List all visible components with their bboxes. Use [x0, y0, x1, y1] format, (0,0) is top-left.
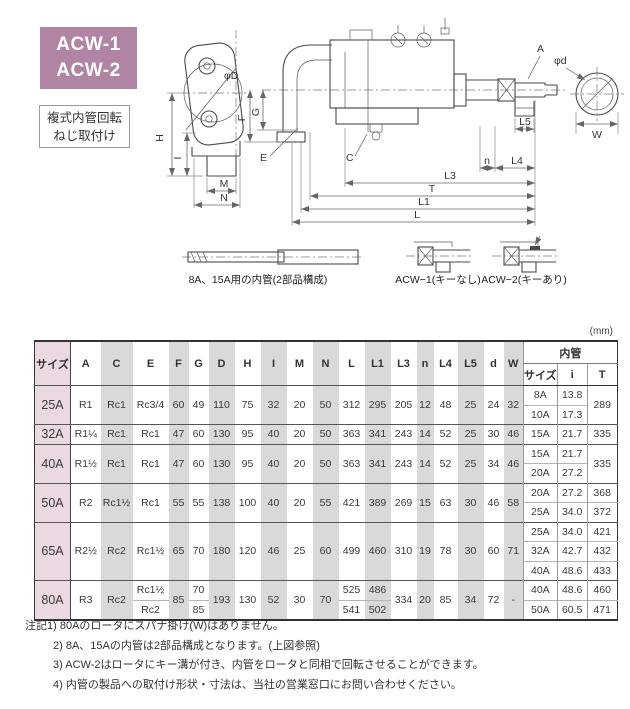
table-cell: 27.2: [557, 483, 587, 503]
table-cell: 34: [458, 581, 484, 621]
table-cell: 58: [504, 483, 524, 522]
acw1-figure: ACW−1(キーなし): [395, 242, 480, 286]
table-cell: 49: [189, 386, 209, 425]
table-header: サイズACEFGDHIMNLL1L3nL4L5dW内管サイズiT: [35, 341, 618, 386]
table-cell: 421: [339, 483, 365, 522]
table-cell: 389: [365, 483, 391, 522]
dim-label-phiD: φD: [224, 70, 239, 82]
column-header: M: [287, 341, 313, 386]
column-header: C: [101, 341, 133, 386]
column-header: d: [484, 341, 504, 386]
table-cell: 70: [189, 581, 209, 601]
table-cell: 78: [434, 522, 458, 581]
table-cell: 40A: [524, 581, 558, 601]
table-cell: 46: [261, 522, 287, 581]
table-cell: 334: [391, 581, 417, 621]
table-row: 80AR3Rc2Rc1½8570193130523070525486334208…: [35, 581, 618, 601]
notes: 注記1) 80Aのロータにスパナ掛け(W)はありません。 2) 8A、15Aの内…: [25, 617, 484, 695]
table-cell: Rc2: [101, 581, 133, 621]
table-cell: 15A: [524, 425, 558, 445]
table-cell: 42.7: [557, 542, 587, 562]
dim-label-L3: L3: [444, 170, 456, 182]
table-cell: 65A: [35, 522, 71, 581]
table-row: 40AR1½Rc1Rc14760130954020503633412431452…: [35, 444, 618, 464]
table-cell: 30: [287, 581, 313, 621]
table-cell: 335: [587, 425, 617, 445]
table-cell: 471: [587, 600, 617, 620]
column-header: N: [313, 341, 339, 386]
table-cell: 52: [434, 425, 458, 445]
column-header: L3: [391, 341, 417, 386]
table-cell: 19: [417, 522, 434, 581]
table-cell: 460: [365, 522, 391, 581]
column-header: サイズ: [35, 341, 71, 386]
table-cell: 499: [339, 522, 365, 581]
dim-label-L1: L1: [418, 196, 430, 208]
table-cell: 20: [287, 483, 313, 522]
table-cell: Rc1: [101, 386, 133, 425]
table-cell: 110: [209, 386, 235, 425]
table-cell: 50: [313, 425, 339, 445]
table-cell: 363: [339, 444, 365, 483]
table-cell: 8A: [524, 386, 558, 406]
dim-label-L4: L4: [511, 155, 523, 167]
table-cell: 65: [169, 522, 189, 581]
table-cell: 85: [169, 581, 189, 621]
table-cell: Rc1½: [133, 522, 169, 581]
table-cell: 14: [417, 444, 434, 483]
table-cell: 372: [587, 503, 617, 523]
dim-label-T: T: [429, 183, 436, 195]
table-cell: 335: [587, 444, 617, 483]
table-cell: 60: [189, 444, 209, 483]
table-cell: Rc1½: [101, 483, 133, 522]
mounting-type-line2: ねじ取付け: [53, 127, 116, 145]
table-cell: 25A: [524, 503, 558, 523]
table-cell: 46: [504, 425, 524, 445]
table-cell: 130: [235, 581, 261, 621]
table-cell: 368: [587, 483, 617, 503]
table-cell: 21.7: [557, 444, 587, 464]
note-4: 4) 内管の製品への取付け形状・寸法は、当社の営業窓口にお問い合わせください。: [25, 676, 484, 696]
table-cell: 460: [587, 581, 617, 601]
table-row: 32AR1¼Rc1Rc14760130954020503633412431452…: [35, 425, 618, 445]
table-cell: R2: [71, 483, 101, 522]
dim-label-C: C: [346, 152, 354, 164]
table-cell: 95: [235, 444, 261, 483]
table-cell: 30: [458, 522, 484, 581]
column-header: L4: [434, 341, 458, 386]
dim-label-W: W: [592, 129, 602, 141]
table-cell: 20: [417, 581, 434, 621]
table-cell: 486: [365, 581, 391, 601]
table-cell: 433: [587, 561, 617, 581]
table-cell: 25: [458, 386, 484, 425]
table-cell: Rc1: [101, 425, 133, 445]
table-cell: 25: [287, 522, 313, 581]
table-cell: 312: [339, 386, 365, 425]
table-cell: 50A: [35, 483, 71, 522]
dim-label-F: F: [236, 115, 248, 121]
table-cell: 47: [169, 444, 189, 483]
table-cell: 55: [189, 483, 209, 522]
table-cell: 63: [434, 483, 458, 522]
column-header: E: [133, 341, 169, 386]
table-cell: 34.0: [557, 522, 587, 542]
table-cell: 21.7: [557, 425, 587, 445]
table-cell: 15A: [524, 444, 558, 464]
table-cell: 25: [458, 425, 484, 445]
end-view: φd W: [554, 55, 624, 141]
table-cell: 24: [484, 386, 504, 425]
dim-label-G: G: [250, 108, 262, 116]
table-cell: 71: [504, 522, 524, 581]
section-view: E C A F G L5 n L4: [236, 18, 566, 226]
table-cell: 75: [235, 386, 261, 425]
table-cell: 40: [261, 444, 287, 483]
note-3: 3) ACW-2はロータにキー溝が付き、内管をロータと同相で回転させることができ…: [25, 656, 484, 676]
column-header: F: [169, 341, 189, 386]
table-cell: 50: [313, 444, 339, 483]
table-cell: 30: [458, 483, 484, 522]
table-cell: 243: [391, 425, 417, 445]
column-header: L: [339, 341, 365, 386]
table-cell: 12: [417, 386, 434, 425]
table-cell: Rc1½: [133, 581, 169, 601]
table-body: 25AR1Rc1Rc3/4604911075322050312295205124…: [35, 386, 618, 621]
table-cell: 40: [261, 483, 287, 522]
product-code-badge: ACW-1 ACW-2: [40, 27, 137, 89]
dim-label-I: I: [172, 157, 184, 160]
table-cell: 25A: [35, 386, 71, 425]
table-row: 25AR1Rc1Rc3/4604911075322050312295205124…: [35, 386, 618, 406]
acw1-caption: ACW−1(キーなし): [395, 274, 480, 286]
table-cell: 289: [587, 386, 617, 425]
table-cell: 138: [209, 483, 235, 522]
badge-line1: ACW-1: [56, 32, 120, 58]
dim-label-phid: φd: [554, 55, 567, 67]
table-cell: 25: [458, 444, 484, 483]
table-cell: 20: [287, 444, 313, 483]
table-cell: 13.8: [557, 386, 587, 406]
acw2-caption: ACW−2(キーあり): [481, 274, 566, 286]
key-detail: [530, 246, 540, 250]
dimension-table: サイズACEFGDHIMNLL1L3nL4L5dW内管サイズiT 25AR1Rc…: [34, 340, 618, 621]
table-cell: 47: [169, 425, 189, 445]
table-cell: 70: [189, 522, 209, 581]
table-row: サイズACEFGDHIMNLL1L3nL4L5dW内管: [35, 341, 618, 364]
table-cell: 32: [261, 386, 287, 425]
note-1: 注記1) 80Aのロータにスパナ掛け(W)はありません。: [25, 617, 484, 637]
column-header: i: [557, 364, 587, 386]
table-cell: 52: [261, 581, 287, 621]
table-cell: 20: [287, 425, 313, 445]
acw2-figure: ACW−2(キーあり): [481, 236, 566, 286]
table-cell: 34.0: [557, 503, 587, 523]
table-cell: 60.5: [557, 600, 587, 620]
table-cell: 40A: [524, 561, 558, 581]
table-cell: 55: [169, 483, 189, 522]
column-header: T: [587, 364, 617, 386]
table-cell: 34: [484, 444, 504, 483]
table-cell: -: [504, 581, 524, 621]
column-header: I: [261, 341, 287, 386]
table-cell: R1½: [71, 444, 101, 483]
mounting-type-line1: 複式内管回転: [47, 109, 122, 127]
table-cell: 46: [504, 444, 524, 483]
table-row: 50AR2Rc1½Rc15555138100402055421389269156…: [35, 483, 618, 503]
table-cell: 32A: [524, 542, 558, 562]
column-header: L1: [365, 341, 391, 386]
table-cell: 46: [484, 483, 504, 522]
table-cell: Rc1: [133, 425, 169, 445]
table-cell: 120: [235, 522, 261, 581]
table-cell: 20A: [524, 464, 558, 484]
table-cell: 525: [339, 581, 365, 601]
table-cell: 70: [313, 581, 339, 621]
table-cell: R2½: [71, 522, 101, 581]
table-cell: 15: [417, 483, 434, 522]
table-cell: 48.6: [557, 561, 587, 581]
table-cell: 40A: [35, 444, 71, 483]
dim-label-L: L: [414, 209, 420, 221]
table-cell: 48: [434, 386, 458, 425]
dim-label-H: H: [154, 134, 166, 142]
dim-label-L5: L5: [519, 116, 531, 128]
table-cell: Rc1: [133, 444, 169, 483]
mounting-type-box: 複式内管回転 ねじ取付け: [39, 105, 130, 148]
table-cell: 432: [587, 542, 617, 562]
table-cell: 95: [235, 425, 261, 445]
table-cell: 205: [391, 386, 417, 425]
column-header: 内管: [524, 341, 618, 364]
table-cell: 40: [261, 425, 287, 445]
table-cell: R1¼: [71, 425, 101, 445]
table-cell: Rc3/4: [133, 386, 169, 425]
table-cell: 363: [339, 425, 365, 445]
note-2: 2) 8A、15Aの内管は2部品構成となります。(上図参照): [25, 637, 484, 657]
table-cell: 30: [484, 425, 504, 445]
table-cell: 20: [287, 386, 313, 425]
unit-label: (mm): [590, 326, 613, 337]
table-cell: 48.6: [557, 581, 587, 601]
column-header: A: [71, 341, 101, 386]
table-cell: 10A: [524, 405, 558, 425]
table-cell: 32: [504, 386, 524, 425]
table-cell: 180: [209, 522, 235, 581]
table-cell: Rc1: [101, 444, 133, 483]
table-cell: 55: [313, 483, 339, 522]
dim-label-M: M: [220, 178, 229, 190]
table-cell: 80A: [35, 581, 71, 621]
table-cell: 25A: [524, 522, 558, 542]
column-header: D: [209, 341, 235, 386]
dim-label-n: n: [484, 155, 490, 167]
table-cell: Rc1: [133, 483, 169, 522]
column-header: W: [504, 341, 524, 386]
table-cell: R3: [71, 581, 101, 621]
table-cell: 14: [417, 425, 434, 445]
table-cell: 50A: [524, 600, 558, 620]
table-cell: 52: [434, 444, 458, 483]
table-row: 65AR2½Rc2Rc1½657018012046256049946031019…: [35, 522, 618, 542]
column-header: G: [189, 341, 209, 386]
table-cell: 32A: [35, 425, 71, 445]
table-cell: 341: [365, 444, 391, 483]
table-cell: 60: [313, 522, 339, 581]
table-cell: R1: [71, 386, 101, 425]
table-cell: 130: [209, 444, 235, 483]
table-cell: 243: [391, 444, 417, 483]
table-cell: 20A: [524, 483, 558, 503]
table-cell: 295: [365, 386, 391, 425]
inner-tube-figure: 8A、15A用の内管(2部品構成): [182, 250, 362, 286]
column-header: L5: [458, 341, 484, 386]
table-cell: 421: [587, 522, 617, 542]
table-cell: 60: [169, 386, 189, 425]
table-cell: 100: [235, 483, 261, 522]
table-cell: 50: [313, 386, 339, 425]
column-header: サイズ: [524, 364, 558, 386]
table-cell: 85: [434, 581, 458, 621]
dim-label-A: A: [537, 43, 544, 55]
table-cell: Rc2: [101, 522, 133, 581]
table-cell: 269: [391, 483, 417, 522]
table-cell: 193: [209, 581, 235, 621]
table-cell: 17.3: [557, 405, 587, 425]
table-cell: 130: [209, 425, 235, 445]
catalog-page: φD H I M N: [0, 0, 630, 709]
table-cell: 72: [484, 581, 504, 621]
badge-line2: ACW-2: [56, 58, 120, 84]
table-cell: 27.2: [557, 464, 587, 484]
column-header: H: [235, 341, 261, 386]
dim-label-E: E: [260, 152, 267, 164]
dim-label-N: N: [220, 192, 228, 204]
table-cell: 310: [391, 522, 417, 581]
table-cell: 60: [189, 425, 209, 445]
table-cell: 341: [365, 425, 391, 445]
column-header: n: [417, 341, 434, 386]
table-cell: 60: [484, 522, 504, 581]
inner-tube-caption: 8A、15A用の内管(2部品構成): [189, 273, 328, 286]
